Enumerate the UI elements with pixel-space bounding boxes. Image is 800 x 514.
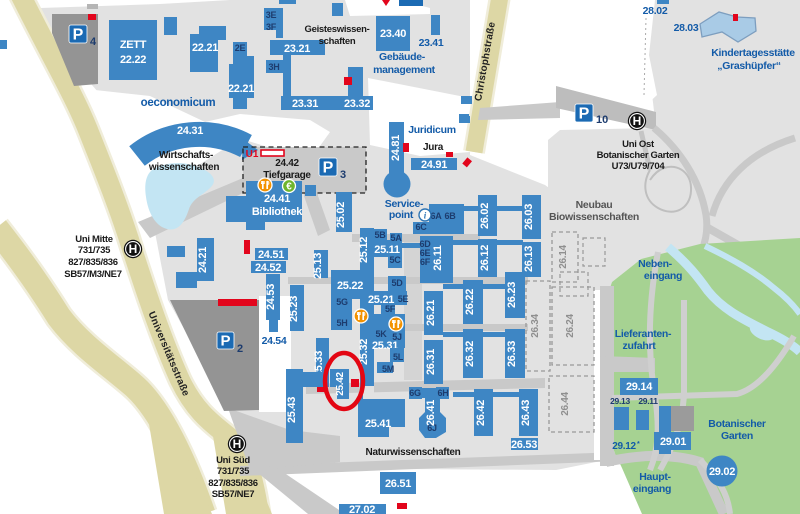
svg-text:26.44: 26.44 [560, 392, 571, 416]
svg-text:Juridicum: Juridicum [408, 124, 455, 136]
svg-text:point: point [389, 209, 414, 221]
svg-text:6G: 6G [409, 388, 421, 398]
svg-text:Biowissenschaften: Biowissenschaften [549, 211, 639, 223]
svg-text:P: P [323, 160, 334, 177]
svg-text:5F: 5F [385, 304, 396, 314]
svg-text:management: management [373, 64, 436, 76]
svg-text:24.21: 24.21 [197, 247, 209, 273]
svg-text:25.41: 25.41 [365, 418, 391, 430]
svg-text:24.31: 24.31 [177, 125, 203, 137]
svg-text:4: 4 [90, 36, 97, 48]
svg-text:26.11: 26.11 [432, 245, 444, 271]
svg-text:827/835/836: 827/835/836 [68, 257, 118, 268]
svg-text:5L: 5L [393, 352, 404, 362]
svg-text:22.22: 22.22 [120, 54, 146, 66]
svg-text:25.43: 25.43 [286, 397, 298, 423]
svg-text:26.53: 26.53 [511, 439, 537, 451]
svg-text:wissenschaften: wissenschaften [148, 162, 219, 173]
svg-text:25.12: 25.12 [358, 237, 370, 263]
svg-text:25.13: 25.13 [312, 253, 324, 279]
svg-text:26.51: 26.51 [385, 478, 411, 490]
svg-text:26.13: 26.13 [523, 246, 535, 272]
svg-text:10: 10 [596, 114, 608, 126]
svg-text:6B: 6B [445, 211, 457, 221]
svg-text:29.14: 29.14 [626, 381, 653, 393]
svg-text:28.03: 28.03 [674, 22, 699, 34]
svg-text:Neubau: Neubau [576, 199, 613, 211]
svg-text:23.32: 23.32 [344, 98, 370, 110]
svg-text:6H: 6H [438, 388, 449, 398]
svg-text:3H: 3H [269, 62, 280, 72]
svg-text:5C: 5C [390, 255, 402, 265]
svg-text:29.01: 29.01 [660, 436, 686, 448]
svg-text:6J: 6J [427, 423, 437, 433]
svg-text:23.31: 23.31 [292, 98, 318, 110]
svg-text:26.22: 26.22 [464, 289, 476, 315]
svg-text:29.12: 29.12 [612, 441, 636, 452]
svg-text:26.12: 26.12 [479, 245, 491, 271]
svg-text:5D: 5D [392, 278, 404, 288]
svg-text:Kindertagesstätte: Kindertagesstätte [711, 47, 795, 59]
svg-text:schaften: schaften [319, 36, 356, 47]
svg-text:U73/U79/704: U73/U79/704 [612, 161, 666, 172]
svg-text:Jura: Jura [423, 142, 444, 153]
svg-text:6A: 6A [431, 211, 443, 221]
svg-text:Uni Mitte: Uni Mitte [75, 234, 112, 245]
svg-text:25.22: 25.22 [337, 280, 363, 292]
svg-text:5A: 5A [391, 233, 403, 243]
svg-text:SB57/M3/NE7: SB57/M3/NE7 [64, 269, 121, 280]
svg-text:22.21: 22.21 [228, 83, 254, 95]
svg-text:Bibliothek: Bibliothek [252, 206, 303, 218]
svg-text:22.21: 22.21 [192, 42, 218, 54]
svg-text:Neben-: Neben- [638, 258, 673, 270]
svg-text:U1: U1 [246, 149, 259, 160]
svg-text:P: P [579, 106, 590, 123]
svg-text:*: * [637, 441, 640, 448]
svg-text:25.02: 25.02 [335, 202, 347, 228]
svg-text:27.02: 27.02 [349, 504, 375, 514]
svg-text:24.53: 24.53 [265, 284, 277, 310]
svg-text:Naturwissenschaften: Naturwissenschaften [366, 447, 461, 458]
svg-text:731/735: 731/735 [217, 466, 250, 477]
svg-text:29.02: 29.02 [709, 466, 735, 478]
svg-text:28.02: 28.02 [643, 5, 668, 17]
svg-text:26.31: 26.31 [425, 349, 437, 375]
svg-text:eingang: eingang [633, 483, 671, 495]
svg-text:Uni Ost: Uni Ost [622, 139, 655, 150]
svg-text:3: 3 [340, 169, 346, 181]
svg-text:Botanischer: Botanischer [708, 418, 766, 430]
svg-text:H: H [633, 114, 642, 128]
svg-text:SB57/NE7: SB57/NE7 [212, 489, 255, 500]
svg-text:„Grashüpfer“: „Grashüpfer“ [717, 60, 781, 72]
svg-text:26.34: 26.34 [530, 314, 541, 338]
svg-text:731/735: 731/735 [78, 245, 111, 256]
svg-text:H: H [233, 437, 242, 451]
svg-text:H: H [129, 242, 138, 256]
svg-text:25.23: 25.23 [288, 296, 300, 322]
svg-text:€: € [286, 182, 292, 193]
svg-text:24.52: 24.52 [255, 262, 281, 274]
svg-text:5E: 5E [398, 294, 409, 304]
svg-text:24.51: 24.51 [258, 249, 284, 261]
svg-text:26.42: 26.42 [475, 400, 487, 426]
svg-text:26.03: 26.03 [523, 204, 535, 230]
svg-text:29.11: 29.11 [638, 396, 658, 406]
svg-text:26.33: 26.33 [506, 341, 518, 367]
svg-text:24.81: 24.81 [390, 135, 402, 161]
svg-text:Wirtschafts-: Wirtschafts- [159, 150, 213, 161]
svg-text:26.14: 26.14 [558, 245, 569, 269]
svg-text:Gebäude-: Gebäude- [379, 51, 426, 63]
svg-text:26.43: 26.43 [520, 400, 532, 426]
svg-text:23.40: 23.40 [380, 28, 406, 40]
svg-text:26.24: 26.24 [565, 314, 576, 338]
svg-text:Uni Süd: Uni Süd [216, 455, 250, 466]
svg-text:24.54: 24.54 [262, 335, 287, 347]
svg-text:P: P [73, 27, 84, 44]
svg-text:zufahrt: zufahrt [623, 340, 657, 352]
svg-text:6C: 6C [416, 222, 428, 232]
svg-text:Lieferanten-: Lieferanten- [615, 328, 672, 340]
svg-text:Botanischer Garten: Botanischer Garten [597, 150, 680, 161]
svg-text:26.02: 26.02 [479, 203, 491, 229]
svg-text:5K: 5K [376, 329, 388, 339]
svg-text:5M: 5M [382, 364, 394, 374]
svg-text:26.21: 26.21 [425, 300, 437, 326]
svg-text:23.41: 23.41 [419, 37, 444, 49]
svg-text:23.21: 23.21 [284, 43, 310, 55]
svg-text:5B: 5B [375, 230, 387, 240]
svg-text:ZETT: ZETT [120, 39, 147, 51]
svg-text:3F: 3F [266, 22, 277, 32]
svg-text:25.42: 25.42 [335, 372, 346, 396]
svg-text:2: 2 [237, 343, 243, 355]
svg-text:Geisteswissen-: Geisteswissen- [305, 24, 370, 35]
svg-text:24.41: 24.41 [264, 193, 290, 205]
svg-text:24.42: 24.42 [275, 158, 299, 169]
svg-text:26.23: 26.23 [506, 282, 518, 308]
svg-text:24.91: 24.91 [421, 159, 447, 171]
svg-text:3E: 3E [266, 10, 277, 20]
svg-text:oeconomicum: oeconomicum [141, 97, 216, 109]
svg-text:Haupt-: Haupt- [639, 471, 671, 483]
svg-text:26.32: 26.32 [464, 341, 476, 367]
svg-text:827/835/836: 827/835/836 [208, 478, 258, 489]
svg-text:6F: 6F [420, 257, 431, 267]
svg-text:P: P [220, 333, 230, 350]
svg-text:29.13: 29.13 [610, 396, 630, 406]
svg-text:2E: 2E [235, 43, 246, 53]
svg-text:5H: 5H [337, 318, 348, 328]
svg-text:5G: 5G [336, 297, 348, 307]
svg-text:Garten: Garten [721, 430, 753, 442]
svg-text:eingang: eingang [644, 270, 682, 282]
